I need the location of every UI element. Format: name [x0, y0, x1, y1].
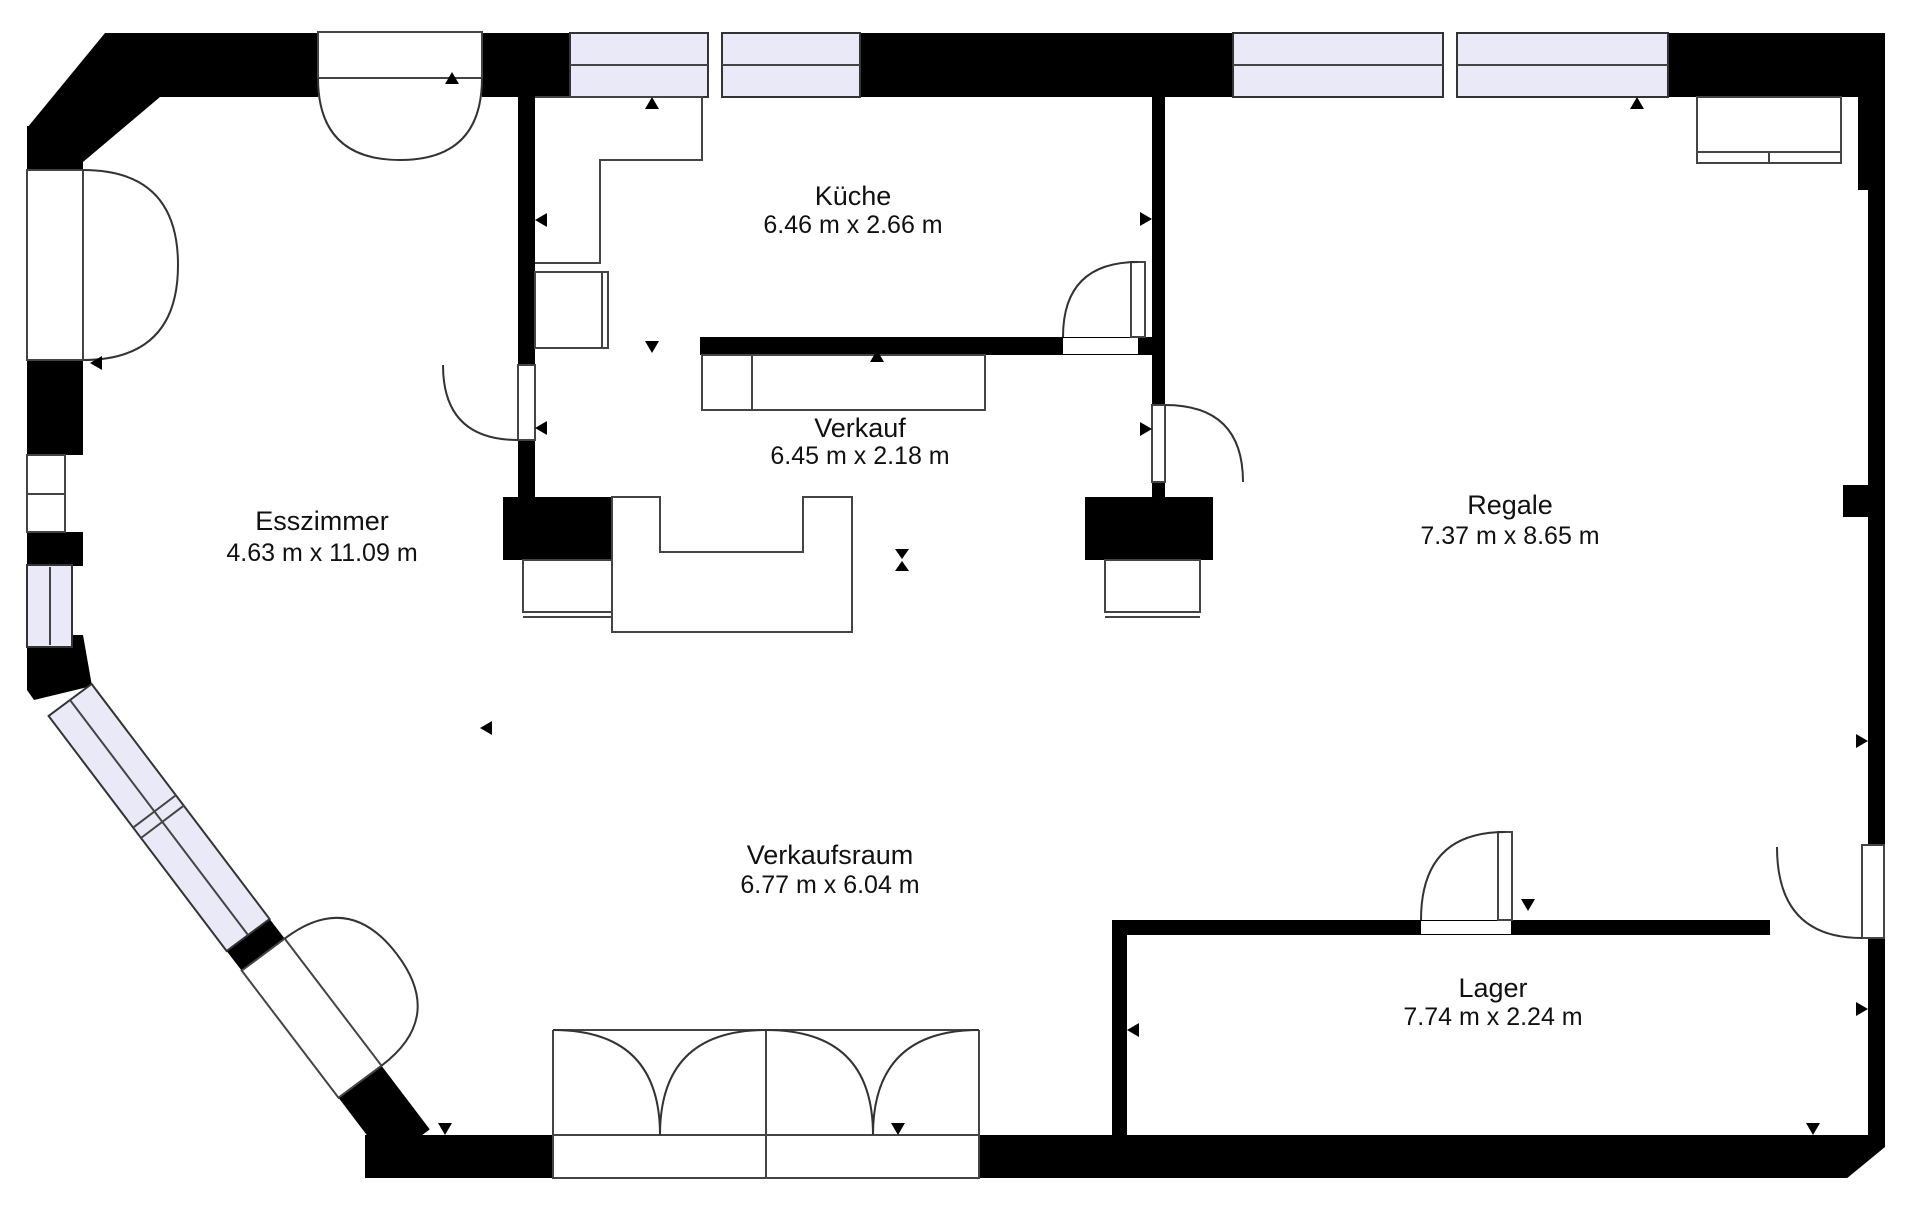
room-label-verkaufsraum-name: Verkaufsraum [747, 840, 914, 870]
sideboard-left [523, 560, 612, 612]
bottom-door-arc1 [553, 1030, 660, 1135]
marker-arrow-right-wall-2 [1856, 1002, 1868, 1016]
door-kueche-verkauf-arc [1063, 262, 1138, 337]
room-label-lager-dims: 7.74 m x 2.24 m [1403, 1003, 1582, 1031]
room-label-kueche-dims: 6.46 m x 2.66 m [763, 211, 942, 239]
bottom-door-arc4 [873, 1030, 979, 1135]
kitchen-counter [535, 97, 702, 263]
marker-arrow-bottom-3 [1806, 1123, 1820, 1135]
u-shaped-counter [612, 497, 852, 632]
doors [27, 32, 1884, 1178]
sales-counter [702, 355, 985, 410]
door-lager-opening [1421, 921, 1511, 934]
wall-esszimmer-kueche-lower [518, 440, 535, 498]
room-label-esszimmer-dims: 4.63 m x 11.09 m [226, 539, 417, 567]
wall-block-right [1085, 497, 1213, 560]
right-wall-mid [1868, 190, 1885, 845]
marker-arrow-left-door [90, 356, 102, 370]
diagonal-door-box [242, 939, 382, 1098]
diagonal-door-arc-bottom [382, 954, 418, 1066]
door-lager-arc [1421, 832, 1505, 920]
room-labels: Küche 6.46 m x 2.66 m Verkauf 6.45 m x 2… [226, 181, 1599, 1031]
bottom-door-arc3 [766, 1030, 873, 1135]
room-label-lager-name: Lager [1458, 973, 1527, 1003]
marker-arrow-up-window-a [645, 97, 659, 109]
door-lager-leaf [1498, 832, 1512, 920]
marker-arrow-bottom-2 [891, 1123, 905, 1135]
marker-arrow-lager-left [1127, 1023, 1139, 1037]
marker-hourglass-bottom [895, 561, 909, 571]
sideboard-right [1105, 560, 1200, 612]
marker-arrow-down-bar [645, 341, 659, 353]
marker-arrow-wall3-door [1140, 422, 1152, 436]
wall-esszimmer-kueche [518, 97, 535, 365]
left-wall-mid2 [27, 532, 83, 566]
wall-kueche-regale-lower [1152, 482, 1165, 498]
door-verkauf-regale-arc [1165, 405, 1243, 482]
room-label-regale-name: Regale [1467, 490, 1553, 520]
marker-arrow-wall3-upper [1140, 212, 1152, 226]
marker-arrow-wall1-door [535, 421, 547, 435]
marker-arrow-wall1-upper [535, 213, 547, 227]
entrance-door-box [318, 32, 482, 78]
door-kueche-verkauf-leaf [1131, 262, 1145, 337]
marker-arrow-lager-door [1521, 899, 1535, 911]
door-kueche-verkauf-opening [1063, 338, 1138, 354]
marker-arrow-up-window-b [1630, 97, 1644, 109]
floor-plan-page: Küche 6.46 m x 2.66 m Verkauf 6.45 m x 2… [0, 0, 1920, 1219]
room-label-kueche-name: Küche [815, 181, 892, 211]
right-wall-lower [1868, 938, 1885, 1160]
door-right-wall-arc [1777, 847, 1862, 938]
markers [90, 72, 1868, 1135]
door-esszimmer-kueche-leaf [518, 365, 535, 440]
door-right-wall-leaf [1862, 845, 1884, 938]
marker-arrow-right-wall-1 [1856, 734, 1868, 748]
room-label-regale-dims: 7.37 m x 8.65 m [1420, 522, 1599, 550]
marker-arrow-diagonal [480, 721, 492, 735]
wall-lager-left [1112, 920, 1127, 1135]
room-label-verkauf-name: Verkauf [814, 413, 906, 443]
right-wall-pier [1843, 485, 1871, 517]
left-double-door-box [27, 170, 83, 360]
left-wall-upper [27, 126, 83, 172]
room-label-esszimmer-name: Esszimmer [255, 506, 389, 536]
diagonal-door-arc-top [285, 918, 397, 954]
marker-hourglass-top [895, 549, 909, 559]
left-double-door-arc-top [83, 170, 178, 265]
right-wall-upper [1858, 97, 1885, 190]
wall-kueche-regale [1152, 97, 1165, 405]
kitchen-appliance [535, 272, 608, 348]
door-esszimmer-kueche-arc [443, 365, 518, 440]
marker-arrow-bottom-1 [438, 1123, 452, 1135]
door-verkauf-regale-leaf [1152, 405, 1165, 482]
windows [27, 33, 1668, 951]
left-double-door-arc-bottom [83, 265, 178, 360]
room-label-verkauf-dims: 6.45 m x 2.18 m [770, 442, 949, 470]
diagonal-window-line [70, 700, 248, 935]
wall-block-left [503, 497, 612, 560]
room-label-verkaufsraum-dims: 6.77 m x 6.04 m [740, 871, 919, 899]
bottom-door-arc2 [660, 1030, 766, 1135]
left-wall-mid1 [27, 360, 83, 455]
floor-plan-canvas: Küche 6.46 m x 2.66 m Verkauf 6.45 m x 2… [0, 0, 1920, 1219]
